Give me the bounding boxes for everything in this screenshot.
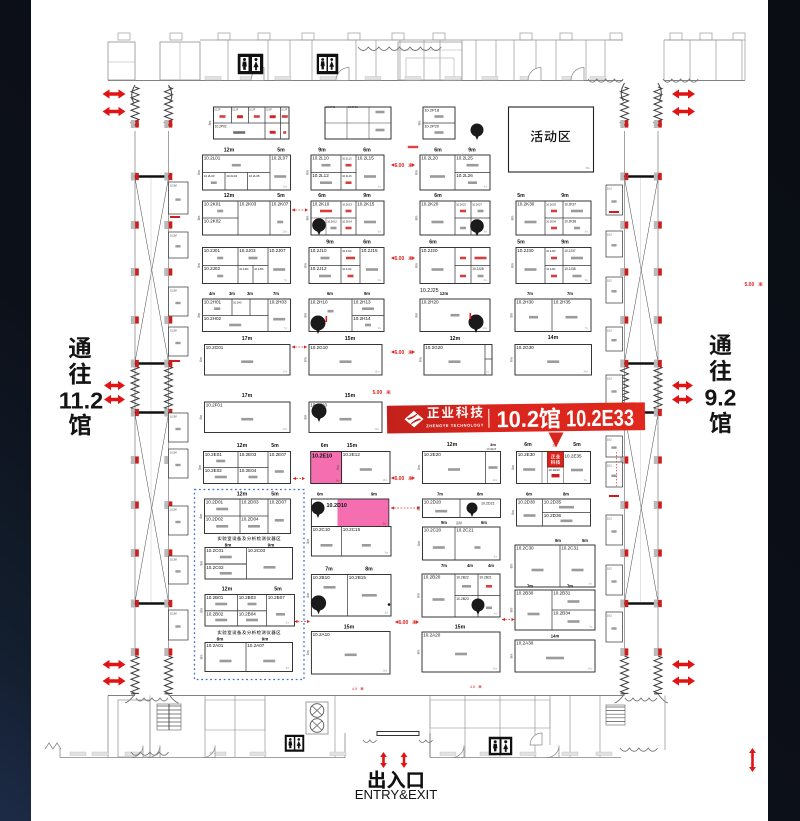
svg-text:8m: 8m — [417, 465, 421, 470]
svg-text:8m: 8m — [415, 215, 419, 220]
svg-text:10.2M: 10.2M — [170, 452, 177, 455]
svg-text:10.2C20: 10.2C20 — [424, 528, 442, 533]
svg-text:8m: 8m — [417, 649, 421, 654]
svg-text:10.2L20: 10.2L20 — [421, 156, 438, 161]
svg-text:8m: 8m — [200, 608, 204, 613]
svg-text:5m: 5m — [573, 442, 581, 448]
svg-text:15m: 15m — [375, 429, 380, 431]
svg-text:10.2P: 10.2P — [249, 110, 255, 112]
svg-text:6m: 6m — [363, 240, 371, 246]
svg-text:10.2J33: 10.2J33 — [546, 249, 556, 253]
svg-text:10.2B21: 10.2B21 — [479, 576, 492, 580]
svg-text:6.00: 6.00 — [395, 163, 405, 169]
svg-text:8m: 8m — [419, 357, 423, 362]
svg-text:10.2: 10.2 — [496, 406, 539, 433]
svg-text:10.2D02: 10.2D02 — [206, 517, 224, 522]
svg-text:8m: 8m — [198, 465, 202, 470]
svg-text:10.2J30: 10.2J30 — [517, 248, 534, 253]
svg-text:6m: 6m — [434, 148, 442, 154]
svg-text:10.2K13: 10.2K13 — [342, 203, 352, 207]
svg-text:10.2C01: 10.2C01 — [206, 548, 224, 553]
svg-text:10.2L15: 10.2L15 — [357, 156, 374, 161]
svg-text:14m: 14m — [548, 335, 559, 341]
svg-text:10.2P: 10.2P — [232, 110, 238, 112]
svg-text:10.2H30: 10.2H30 — [516, 300, 534, 305]
svg-text:9m: 9m — [378, 328, 381, 330]
svg-text:10.2K01: 10.2K01 — [204, 202, 222, 207]
svg-text:10.2P18: 10.2P18 — [424, 108, 440, 113]
svg-text:10.2H14: 10.2H14 — [353, 316, 371, 321]
svg-text:17m: 17m — [283, 372, 288, 374]
svg-text:8m: 8m — [385, 613, 388, 615]
svg-text:9m: 9m — [468, 148, 476, 154]
svg-text:9m: 9m — [561, 240, 569, 246]
svg-text:10.2L25: 10.2L25 — [456, 156, 473, 161]
svg-text:6m: 6m — [378, 187, 381, 189]
svg-text:12m: 12m — [283, 232, 288, 234]
svg-text:15m: 15m — [345, 336, 356, 342]
svg-text:10.2: 10.2 — [607, 615, 612, 618]
svg-text:5m: 5m — [584, 480, 587, 482]
svg-text:10.2E20: 10.2E20 — [424, 452, 442, 457]
svg-text:10.2A01: 10.2A01 — [206, 643, 224, 648]
svg-text:8m: 8m — [510, 357, 514, 362]
svg-text:10.2C21: 10.2C21 — [456, 528, 474, 533]
svg-text:8m: 8m — [306, 215, 310, 220]
svg-text:15m: 15m — [455, 625, 466, 631]
svg-text:10.2J14: 10.2J14 — [342, 267, 352, 271]
svg-text:10.2: 10.2 — [607, 330, 612, 333]
svg-text:8m: 8m — [197, 170, 201, 175]
svg-text:8m: 8m — [415, 313, 419, 318]
svg-text:8m: 8m — [304, 357, 308, 362]
svg-text:14m: 14m — [588, 669, 593, 671]
svg-text:10.2B03: 10.2B03 — [239, 595, 257, 600]
svg-text:6.00: 6.00 — [395, 256, 405, 262]
svg-text:10.2J07: 10.2J07 — [269, 248, 286, 253]
svg-text:6m: 6m — [321, 443, 329, 449]
svg-text:10.2K07: 10.2K07 — [271, 202, 289, 207]
svg-text:7m: 7m — [273, 291, 279, 296]
svg-text:6m: 6m — [484, 280, 487, 282]
svg-text:10.2: 10.2 — [607, 465, 612, 468]
svg-text:9m: 9m — [585, 280, 588, 282]
svg-text:6m: 6m — [524, 442, 532, 448]
svg-text:15m: 15m — [493, 669, 498, 671]
svg-text:10.2K30: 10.2K30 — [517, 202, 535, 207]
svg-text:10.2L01: 10.2L01 — [204, 156, 221, 161]
svg-text:8m: 8m — [511, 263, 515, 268]
svg-text:8m: 8m — [510, 607, 514, 612]
svg-text:10.2L04: 10.2L04 — [226, 174, 237, 178]
svg-text:10.2B02: 10.2B02 — [206, 612, 224, 617]
svg-text:8m: 8m — [306, 539, 310, 544]
svg-text:12m: 12m — [237, 443, 248, 449]
svg-text:12m: 12m — [440, 291, 449, 296]
svg-text:5m: 5m — [589, 584, 592, 586]
svg-text:8m: 8m — [511, 510, 515, 515]
svg-text:10.2P: 10.2P — [266, 110, 272, 112]
svg-text:8m: 8m — [200, 561, 204, 566]
svg-text:17m: 17m — [242, 393, 253, 399]
svg-text:10.2L07: 10.2L07 — [271, 156, 288, 161]
svg-text:7m: 7m — [325, 567, 333, 573]
svg-text:10.2E35: 10.2E35 — [565, 453, 583, 458]
svg-text:10.2H02: 10.2H02 — [204, 316, 222, 321]
svg-text:12m: 12m — [224, 193, 235, 199]
svg-text:15m: 15m — [345, 393, 356, 399]
svg-text:9m: 9m — [484, 187, 487, 189]
svg-text:8m: 8m — [208, 120, 212, 125]
svg-text:10.2H03: 10.2H03 — [269, 300, 287, 305]
svg-text:4m: 4m — [494, 614, 497, 616]
svg-text:10.2C15: 10.2C15 — [343, 527, 361, 532]
svg-text:7m: 7m — [437, 492, 443, 497]
svg-text:7m: 7m — [284, 328, 287, 330]
svg-text:14m: 14m — [584, 372, 589, 374]
svg-text:10.2: 10.2 — [607, 568, 612, 571]
svg-text:5m: 5m — [517, 240, 525, 246]
svg-text:ZHENGYE TECHNOLOGY: ZHENGYE TECHNOLOGY — [426, 423, 484, 429]
svg-text:10.2J25: 10.2J25 — [420, 288, 439, 294]
svg-text:10.2K34: 10.2K34 — [546, 220, 556, 224]
svg-text:10.2H13: 10.2H13 — [353, 300, 371, 305]
svg-text:10.2J20: 10.2J20 — [421, 248, 438, 253]
svg-text:10.2E03: 10.2E03 — [239, 452, 257, 457]
svg-text:5m: 5m — [271, 443, 279, 449]
svg-text:运球: 运球 — [456, 520, 462, 525]
svg-text:10.2J04: 10.2J04 — [239, 267, 249, 271]
svg-text:10.2J06: 10.2J06 — [254, 267, 264, 271]
svg-text:8m: 8m — [415, 170, 419, 175]
svg-text:10.2D36: 10.2D36 — [544, 513, 562, 518]
svg-text:10.2K38: 10.2K38 — [564, 220, 576, 224]
svg-text:12m: 12m — [483, 328, 488, 330]
svg-text:15m: 15m — [383, 480, 388, 482]
svg-text:10.2K33: 10.2K33 — [546, 203, 556, 207]
svg-text:12m: 12m — [447, 442, 458, 448]
svg-text:10.2: 10.2 — [607, 188, 612, 191]
svg-text:10.2A20: 10.2A20 — [423, 633, 441, 638]
svg-text:12m: 12m — [485, 372, 490, 374]
svg-text:8m: 8m — [306, 170, 310, 175]
svg-text:10.2K23: 10.2K23 — [456, 203, 466, 207]
svg-text:9m: 9m — [383, 523, 386, 526]
svg-text:14m: 14m — [551, 634, 560, 639]
svg-text:10.2B10: 10.2B10 — [313, 575, 331, 580]
svg-text:12m: 12m — [450, 336, 461, 342]
svg-text:12m: 12m — [237, 492, 248, 498]
svg-text:8m: 8m — [197, 313, 201, 318]
svg-text:10.2P20: 10.2P20 — [424, 124, 440, 129]
svg-text:10.2E23: 10.2E23 — [487, 447, 497, 451]
svg-text:10.2B07: 10.2B07 — [268, 595, 286, 600]
svg-text:3m: 3m — [490, 442, 496, 447]
svg-text:10.2E10: 10.2E10 — [312, 453, 332, 459]
svg-text:10.2E30: 10.2E30 — [518, 452, 536, 457]
svg-text:12m: 12m — [493, 480, 498, 482]
svg-text:9m: 9m — [371, 492, 377, 497]
svg-text:10.2M: 10.2M — [170, 613, 177, 616]
svg-text:35m: 35m — [585, 167, 590, 170]
svg-text:5m: 5m — [517, 193, 525, 199]
svg-text:10.2G20: 10.2G20 — [425, 345, 443, 350]
svg-text:8m: 8m — [417, 593, 421, 598]
svg-text:8m: 8m — [336, 465, 340, 470]
svg-text:10.2A07: 10.2A07 — [247, 643, 265, 648]
svg-text:15m: 15m — [347, 443, 358, 449]
svg-text:9m: 9m — [561, 193, 569, 199]
svg-text:10.2H01: 10.2H01 — [204, 300, 222, 305]
svg-text:8m: 8m — [417, 541, 421, 546]
svg-text:8m: 8m — [199, 357, 203, 362]
svg-text:10.2D07: 10.2D07 — [269, 500, 287, 505]
svg-text:10.2M: 10.2M — [170, 559, 177, 562]
svg-text:8m: 8m — [200, 654, 204, 659]
svg-text:10.2G01: 10.2G01 — [206, 345, 224, 350]
svg-text:10.2B20: 10.2B20 — [423, 575, 441, 580]
svg-text:15m: 15m — [344, 625, 355, 631]
svg-text:6.00: 6.00 — [399, 620, 409, 626]
svg-text:10.2C03: 10.2C03 — [248, 548, 266, 553]
svg-text:9m: 9m — [268, 542, 275, 547]
svg-text:8m: 8m — [197, 263, 201, 268]
svg-text:10.2K12: 10.2K12 — [327, 220, 337, 224]
svg-text:7m: 7m — [284, 280, 287, 282]
svg-text:5m: 5m — [277, 148, 285, 154]
svg-text:8m: 8m — [306, 650, 310, 655]
svg-text:6m: 6m — [327, 291, 333, 296]
svg-text:10.2B23: 10.2B23 — [456, 597, 469, 601]
svg-text:10.2C31: 10.2C31 — [561, 546, 579, 551]
svg-text:10.2D01: 10.2D01 — [206, 500, 224, 505]
svg-text:8m: 8m — [197, 215, 201, 220]
svg-text:8m: 8m — [563, 492, 569, 497]
svg-text:5m: 5m — [271, 492, 279, 498]
svg-text:10.2D20: 10.2D20 — [424, 500, 442, 505]
svg-text:10.2L03: 10.2L03 — [204, 174, 215, 178]
svg-text:10.2J03: 10.2J03 — [239, 248, 256, 253]
svg-text:10.2K02: 10.2K02 — [204, 219, 222, 224]
svg-text:10.2D03: 10.2D03 — [241, 500, 259, 505]
svg-text:7m: 7m — [589, 627, 592, 629]
svg-text:9m: 9m — [363, 193, 371, 199]
svg-text:10.2G10: 10.2G10 — [310, 345, 328, 350]
svg-text:3m: 3m — [247, 291, 253, 296]
svg-text:9m: 9m — [585, 232, 588, 234]
svg-text:7m: 7m — [527, 584, 533, 589]
svg-text:9m: 9m — [441, 520, 447, 525]
svg-text:6m: 6m — [484, 232, 487, 234]
svg-text:10.2: 10.2 — [607, 439, 612, 442]
svg-text:ENTRY&EXIT: ENTRY&EXIT — [355, 787, 438, 802]
svg-text:8m: 8m — [199, 415, 203, 420]
svg-text:6m: 6m — [429, 240, 437, 246]
svg-text:10.2M: 10.2M — [170, 290, 177, 293]
svg-text:10.2E33: 10.2E33 — [549, 468, 561, 472]
svg-text:10.2K15: 10.2K15 — [357, 202, 375, 207]
svg-text:10.2: 10.2 — [607, 518, 612, 521]
svg-text:4.5: 4.5 — [470, 685, 475, 689]
svg-text:12m: 12m — [222, 587, 233, 593]
svg-text:10.2K14: 10.2K14 — [342, 220, 352, 224]
svg-text:10.2A10: 10.2A10 — [313, 632, 331, 637]
svg-text:9m: 9m — [378, 232, 381, 234]
svg-text:6m: 6m — [481, 520, 487, 525]
svg-text:10.2L26: 10.2L26 — [456, 173, 473, 178]
svg-text:4m: 4m — [209, 291, 215, 296]
svg-text:6m: 6m — [363, 148, 371, 154]
svg-text:12m: 12m — [283, 187, 288, 189]
svg-text:10.2K03: 10.2K03 — [239, 202, 257, 207]
svg-text:4m: 4m — [467, 563, 473, 568]
svg-text:8m: 8m — [418, 120, 422, 125]
svg-text:8m: 8m — [199, 514, 203, 519]
svg-text:10.2P13: 10.2P13 — [348, 105, 358, 109]
svg-text:5.00: 5.00 — [373, 390, 383, 396]
svg-text:10.2M: 10.2M — [170, 185, 177, 188]
svg-text:10.2E07: 10.2E07 — [269, 452, 287, 457]
svg-text:10.2D04: 10.2D04 — [241, 517, 259, 522]
svg-text:8m: 8m — [304, 263, 308, 268]
svg-text:10.2P11: 10.2P11 — [326, 105, 336, 109]
svg-text:6m: 6m — [336, 480, 339, 483]
svg-text:10.2L13: 10.2L13 — [342, 157, 352, 161]
svg-text:10.2M: 10.2M — [170, 416, 177, 419]
svg-text:5m: 5m — [286, 623, 289, 625]
svg-text:8m: 8m — [511, 215, 515, 220]
svg-text:5m: 5m — [582, 538, 588, 543]
svg-text:10.2D35: 10.2D35 — [544, 500, 562, 505]
svg-text:15m: 15m — [383, 671, 388, 673]
svg-text:10.2E01: 10.2E01 — [205, 452, 223, 457]
svg-text:8m: 8m — [217, 637, 224, 642]
svg-text:10.2L10: 10.2L10 — [312, 156, 329, 161]
svg-text:7m: 7m — [567, 291, 573, 296]
svg-text:6m: 6m — [317, 492, 323, 497]
svg-text:8m: 8m — [304, 313, 308, 318]
svg-text:10.2J28: 10.2J28 — [472, 267, 484, 271]
svg-text:9m: 9m — [262, 637, 269, 642]
svg-text:10.2A30: 10.2A30 — [516, 641, 534, 646]
svg-text:6m: 6m — [318, 193, 326, 199]
svg-text:10.2L12: 10.2L12 — [312, 173, 329, 178]
svg-text:10.2E33: 10.2E33 — [566, 404, 634, 431]
svg-text:7m: 7m — [567, 584, 573, 589]
svg-text:10.2B30: 10.2B30 — [516, 591, 534, 596]
svg-text:10.2J13: 10.2J13 — [342, 249, 352, 253]
svg-text:8m: 8m — [510, 313, 514, 318]
svg-text:9m: 9m — [364, 291, 370, 296]
svg-text:10.2J38: 10.2J38 — [564, 267, 576, 271]
svg-text:10.2F01: 10.2F01 — [206, 403, 223, 408]
svg-text:8m: 8m — [225, 542, 232, 547]
svg-text:9m: 9m — [385, 553, 388, 555]
svg-text:6.00: 6.00 — [395, 476, 405, 482]
svg-text:8m: 8m — [306, 593, 310, 598]
svg-text:10.2M: 10.2M — [170, 330, 177, 333]
svg-text:6m: 6m — [526, 492, 532, 497]
svg-text:10.2L06: 10.2L06 — [249, 174, 260, 178]
svg-text:10.2D30: 10.2D30 — [518, 500, 536, 505]
svg-text:7m: 7m — [527, 291, 533, 296]
svg-text:10.2H20: 10.2H20 — [421, 300, 439, 305]
svg-text:9m: 9m — [555, 538, 561, 543]
svg-text:7m: 7m — [585, 328, 588, 330]
svg-text:6m: 6m — [434, 193, 442, 199]
svg-text:8m: 8m — [365, 567, 373, 573]
svg-text:8m: 8m — [510, 653, 514, 658]
svg-text:9.2: 9.2 — [705, 384, 737, 410]
svg-text:6m: 6m — [494, 557, 497, 559]
svg-text:17m: 17m — [242, 336, 253, 342]
svg-text:10.2J15: 10.2J15 — [361, 248, 378, 253]
svg-text:15m: 15m — [375, 372, 380, 374]
svg-text:10.2M: 10.2M — [170, 509, 177, 512]
svg-text:10.2K27: 10.2K27 — [472, 203, 482, 207]
svg-text:4m: 4m — [488, 563, 494, 568]
svg-text:10.2H0: 10.2H0 — [233, 301, 242, 305]
svg-text:10.2J34: 10.2J34 — [546, 267, 556, 271]
svg-text:10.2D10: 10.2D10 — [327, 503, 347, 509]
svg-text:10.2J01: 10.2J01 — [204, 248, 221, 253]
svg-text:5m: 5m — [277, 193, 285, 199]
svg-text:9m: 9m — [318, 148, 326, 154]
svg-text:17m: 17m — [283, 429, 288, 431]
svg-text:10.2H35: 10.2H35 — [553, 300, 571, 305]
svg-text:9m: 9m — [286, 668, 289, 670]
svg-text:10.2E12: 10.2E12 — [343, 452, 361, 457]
svg-text:10.2P: 10.2P — [214, 110, 220, 112]
svg-text:8m: 8m — [415, 263, 419, 268]
svg-text:8m: 8m — [304, 415, 308, 420]
svg-text:10.2J37: 10.2J37 — [564, 249, 576, 253]
svg-text:10.2: 10.2 — [607, 280, 612, 283]
svg-text:10.2G30: 10.2G30 — [516, 345, 534, 350]
svg-text:10.2B15: 10.2B15 — [349, 575, 367, 580]
svg-text:8m: 8m — [511, 465, 515, 470]
svg-text:10.2B01: 10.2B01 — [206, 595, 224, 600]
svg-text:10.2C30: 10.2C30 — [516, 546, 534, 551]
svg-text:10.2J02: 10.2J02 — [204, 266, 221, 271]
svg-text:8m: 8m — [477, 492, 483, 497]
svg-text:10.2E02: 10.2E02 — [205, 468, 223, 473]
svg-text:7m: 7m — [441, 563, 447, 568]
svg-text:12m: 12m — [224, 148, 235, 154]
svg-text:8m: 8m — [510, 563, 514, 568]
svg-text:5m: 5m — [274, 587, 282, 593]
svg-text:10.2B22: 10.2B22 — [456, 576, 469, 580]
svg-text:10.2B34: 10.2B34 — [553, 611, 571, 616]
svg-text:10.2B04: 10.2B04 — [239, 612, 257, 617]
svg-text:10.2J12: 10.2J12 — [310, 266, 327, 271]
svg-text:6m: 6m — [378, 280, 381, 282]
svg-text:10.2L16: 10.2L16 — [342, 174, 352, 178]
svg-text:4.5: 4.5 — [352, 687, 357, 691]
svg-text:10.2C02: 10.2C02 — [206, 565, 224, 570]
svg-text:10.2P: 10.2P — [281, 110, 287, 112]
svg-text:10.2B31: 10.2B31 — [553, 591, 571, 596]
svg-text:10.2P02: 10.2P02 — [215, 125, 227, 129]
svg-text:6.00: 6.00 — [395, 350, 405, 356]
svg-text:10.2: 10.2 — [607, 234, 612, 237]
svg-text:10.2K20: 10.2K20 — [421, 202, 439, 207]
svg-text:9m: 9m — [326, 240, 334, 246]
svg-text:10.2K37: 10.2K37 — [564, 203, 576, 207]
svg-text:3m: 3m — [229, 291, 235, 296]
svg-text:10.2M: 10.2M — [170, 235, 177, 238]
svg-text:10.2D21: 10.2D21 — [481, 502, 495, 506]
